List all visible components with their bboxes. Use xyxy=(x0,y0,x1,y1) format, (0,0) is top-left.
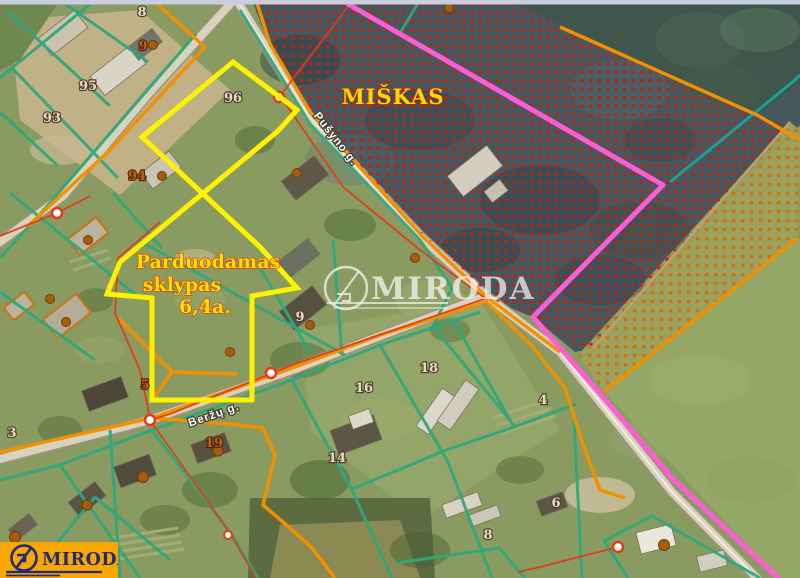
parcel-number-label: 8 xyxy=(137,5,146,20)
svg-text:MIRODA: MIRODA xyxy=(371,271,536,307)
parcel-number-label: 14 xyxy=(328,451,346,466)
parcel-number-label: 3 xyxy=(7,426,16,441)
parcel-number-label: 18 xyxy=(420,361,438,376)
forest-label: MIŠKAS xyxy=(341,84,444,109)
parcel-number-label: 9 xyxy=(138,39,147,54)
map-viewport[interactable]: 899593969495319181614468 Beržų g.Pušyno … xyxy=(0,0,800,578)
top-edge-strip xyxy=(0,0,800,5)
parcel-number-label: 93 xyxy=(43,111,61,126)
parcel-number-label: 16 xyxy=(355,381,373,396)
parcel-number-label: 4 xyxy=(538,393,547,408)
parcel-number-label: 95 xyxy=(79,79,97,94)
parcel-number-label: 94 xyxy=(128,169,146,184)
company-logo-icon xyxy=(12,546,37,571)
map-canvas[interactable]: 899593969495319181614468 Beržų g.Pušyno … xyxy=(0,0,800,578)
parcel-number-label: 19 xyxy=(205,436,223,451)
parcel-number-label: 9 xyxy=(295,310,304,325)
svg-text:sklypas: sklypas xyxy=(143,274,221,296)
svg-text:Parduodamas: Parduodamas xyxy=(136,251,281,273)
parcel-number-label: 8 xyxy=(483,528,492,543)
company-logo-text: MIRODA xyxy=(42,550,118,570)
company-logo: MIRODA xyxy=(0,542,118,578)
svg-text:6,4a.: 6,4a. xyxy=(179,296,231,318)
parcel-number-label: 5 xyxy=(140,378,149,393)
parcel-number-label: 6 xyxy=(551,496,560,511)
parcel-number-label: 96 xyxy=(224,91,242,106)
